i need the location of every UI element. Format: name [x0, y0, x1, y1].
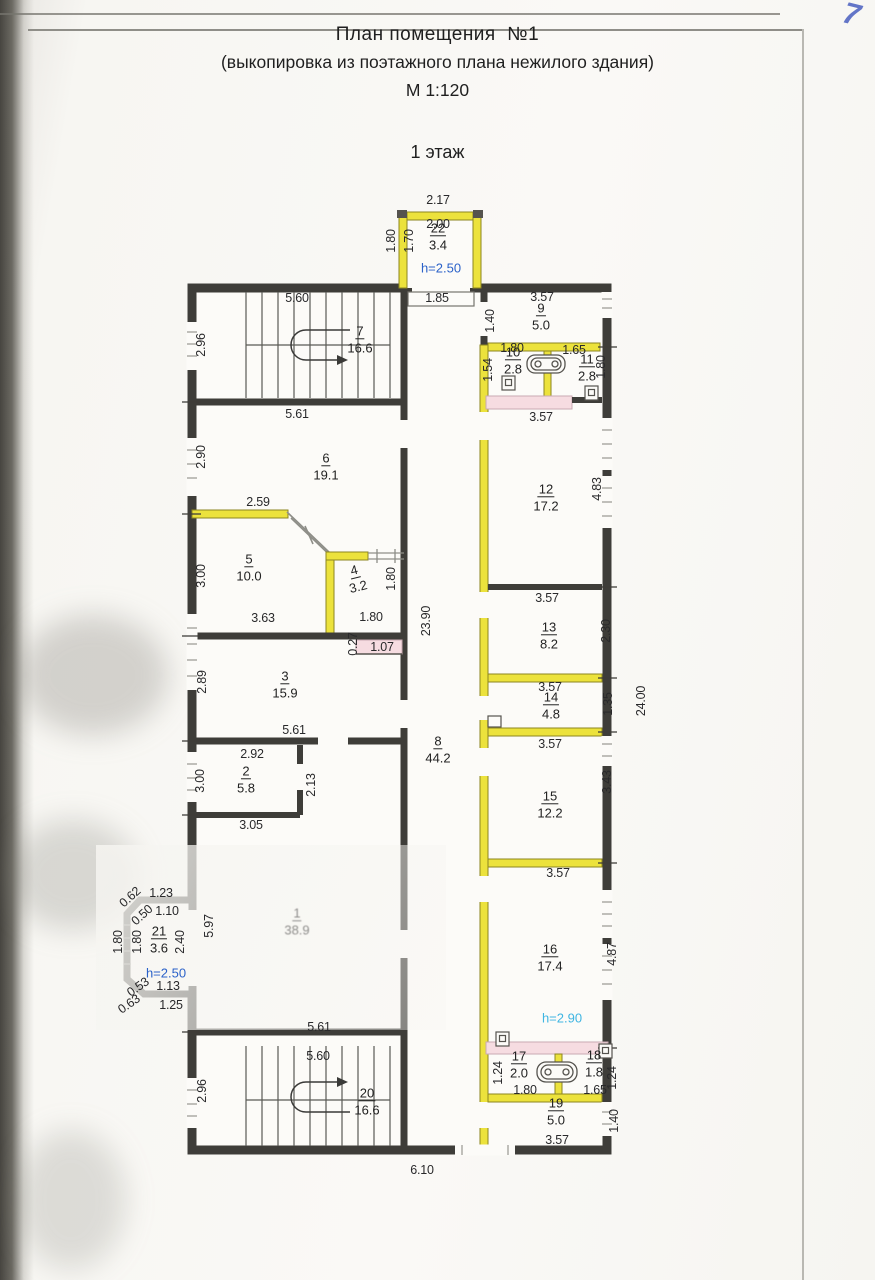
bathtub-icon	[527, 355, 565, 373]
scanned-floor-plan-page: План помещения №1 (выкопировка из поэтаж…	[0, 0, 875, 1280]
bay-window-room-21	[124, 900, 197, 994]
bathtub-icon	[537, 1062, 577, 1082]
floor-plan-drawing	[0, 0, 875, 1280]
vestibule-room-22	[397, 210, 483, 306]
electric-panel-icon	[488, 716, 501, 727]
